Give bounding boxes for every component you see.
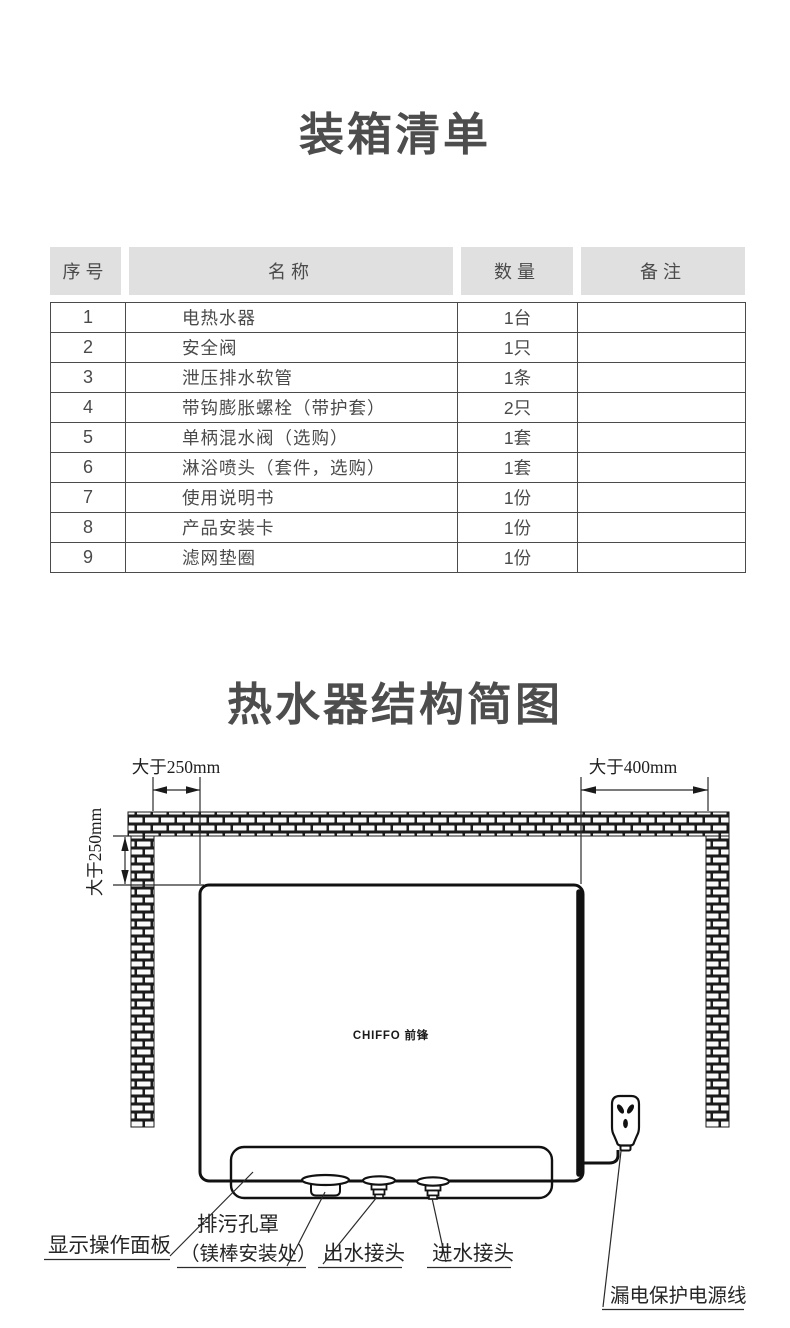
dimension-label-top-right: 大于400mm <box>589 757 678 777</box>
table-row: 4 带钩膨胀螺栓（带护套） 2只 <box>51 393 746 423</box>
cell-qty: 1套 <box>458 423 578 453</box>
label-drain-cover-line1: 排污孔罩 <box>197 1213 279 1236</box>
table-row: 5 单柄混水阀（选购） 1套 <box>51 423 746 453</box>
cell-qty: 1只 <box>458 333 578 363</box>
leader-power-cord <box>603 1151 621 1307</box>
cell-name: 使用说明书 <box>126 483 458 513</box>
manual-page: 装箱清单 序号 名称 数量 备注 1 电热水器 1台 2 安全阀 1只 3 泄压 <box>0 0 790 1328</box>
cell-no: 6 <box>51 453 126 483</box>
cell-name: 滤网垫圈 <box>126 543 458 573</box>
header-cell-note: 备注 <box>581 247 745 295</box>
packing-table-header: 序号 名称 数量 备注 <box>50 247 745 295</box>
cell-no: 2 <box>51 333 126 363</box>
packing-table: 1 电热水器 1台 2 安全阀 1只 3 泄压排水软管 1条 4 带钩膨胀螺栓（… <box>50 302 746 573</box>
cell-note <box>578 423 746 453</box>
power-cord-line <box>583 1150 618 1163</box>
drain-cover <box>302 1175 349 1196</box>
cell-no: 9 <box>51 543 126 573</box>
left-wall <box>131 836 154 1127</box>
cell-no: 4 <box>51 393 126 423</box>
cell-no: 8 <box>51 513 126 543</box>
cell-name: 产品安装卡 <box>126 513 458 543</box>
table-row: 3 泄压排水软管 1条 <box>51 363 746 393</box>
cell-qty: 1条 <box>458 363 578 393</box>
dimension-label-left-side: 大于250mm <box>85 807 105 896</box>
cell-note <box>578 303 746 333</box>
cell-no: 5 <box>51 423 126 453</box>
structure-diagram-title: 热水器结构简图 <box>0 668 790 733</box>
table-row: 2 安全阀 1只 <box>51 333 746 363</box>
water-inlet-connector <box>417 1177 449 1199</box>
cell-name: 单柄混水阀（选购） <box>126 423 458 453</box>
cell-name: 带钩膨胀螺栓（带护套） <box>126 393 458 423</box>
cell-note <box>578 483 746 513</box>
cell-name: 电热水器 <box>126 303 458 333</box>
table-row: 6 淋浴喷头（套件，选购） 1套 <box>51 453 746 483</box>
table-row: 9 滤网垫圈 1份 <box>51 543 746 573</box>
cell-qty: 1套 <box>458 453 578 483</box>
dimension-label-top-left: 大于250mm <box>132 757 221 777</box>
cell-note <box>578 333 746 363</box>
brand-logo: CHIFFO 前锋 <box>353 1028 429 1042</box>
cell-qty: 1台 <box>458 303 578 333</box>
water-heater-body: CHIFFO 前锋 <box>200 885 583 1181</box>
header-cell-name: 名称 <box>129 247 453 295</box>
header-cell-qty: 数量 <box>461 247 573 295</box>
power-plug <box>583 1096 639 1163</box>
cell-no: 3 <box>51 363 126 393</box>
table-row: 1 电热水器 1台 <box>51 303 746 333</box>
cell-name: 淋浴喷头（套件，选购） <box>126 453 458 483</box>
cell-note <box>578 453 746 483</box>
label-display-panel: 显示操作面板 <box>48 1234 171 1257</box>
cell-name: 安全阀 <box>126 333 458 363</box>
cell-qty: 2只 <box>458 393 578 423</box>
cell-name: 泄压排水软管 <box>126 363 458 393</box>
label-drain-cover-line2: （镁棒安装处） <box>180 1243 317 1265</box>
structure-diagram: 大于250mm 大于400mm 大于250mm CHIFFO 前锋 <box>0 740 790 1328</box>
packing-list-title: 装箱清单 <box>0 98 790 163</box>
label-water-outlet: 出水接头 <box>323 1242 405 1265</box>
cell-note <box>578 513 746 543</box>
table-row: 8 产品安装卡 1份 <box>51 513 746 543</box>
cell-note <box>578 543 746 573</box>
cell-no: 7 <box>51 483 126 513</box>
cell-no: 1 <box>51 303 126 333</box>
cell-qty: 1份 <box>458 543 578 573</box>
cell-note <box>578 363 746 393</box>
cell-note <box>578 393 746 423</box>
cell-qty: 1份 <box>458 483 578 513</box>
cell-qty: 1份 <box>458 513 578 543</box>
right-wall <box>706 836 729 1127</box>
header-cell-no: 序号 <box>50 247 121 295</box>
label-power-cord: 漏电保护电源线 <box>610 1285 747 1307</box>
water-outlet-connector <box>363 1176 395 1198</box>
label-water-inlet: 进水接头 <box>432 1242 514 1265</box>
ceiling-wall <box>128 812 729 836</box>
dimension-left-side <box>113 836 204 885</box>
table-row: 7 使用说明书 1份 <box>51 483 746 513</box>
